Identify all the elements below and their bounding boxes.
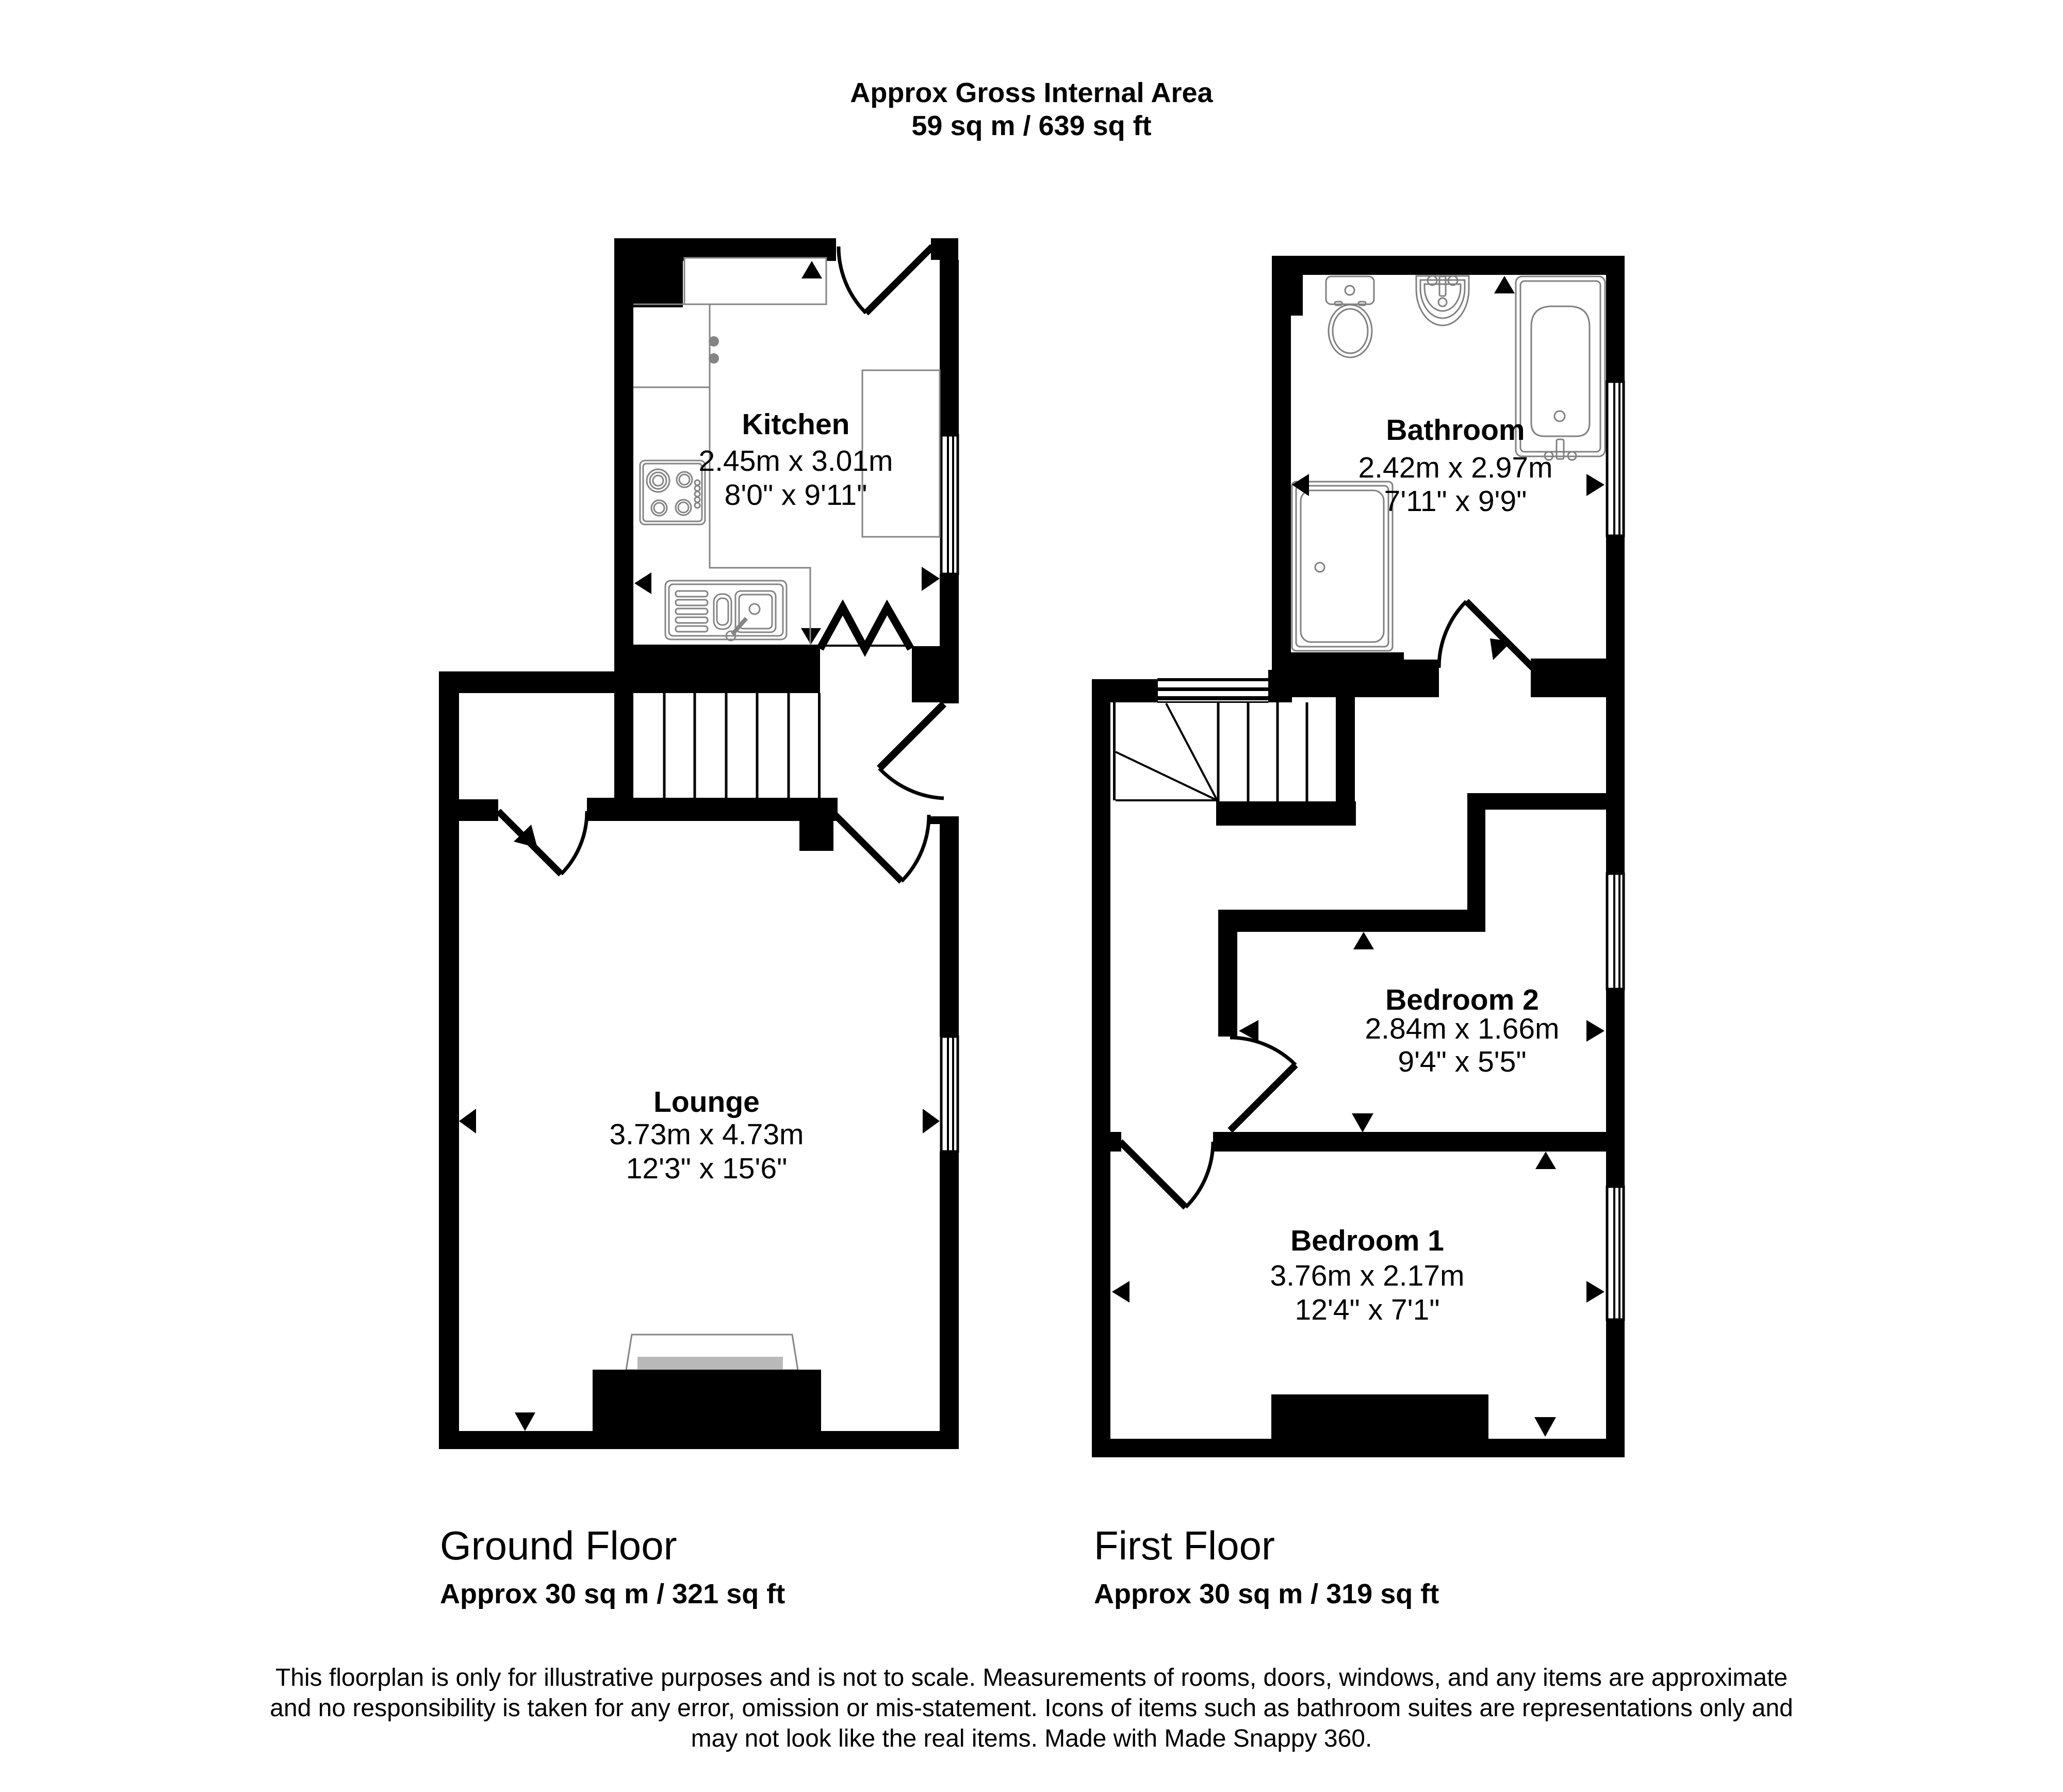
svg-text:and no responsibility is taken: and no responsibility is taken for any e… [270, 1695, 1793, 1722]
svg-text:3.76m x 2.17m: 3.76m x 2.17m [1270, 1259, 1464, 1292]
svg-text:12'3" x 15'6": 12'3" x 15'6" [626, 1152, 788, 1185]
svg-text:9'4" x 5'5": 9'4" x 5'5" [1398, 1045, 1526, 1078]
svg-text:2.84m x 1.66m: 2.84m x 1.66m [1365, 1012, 1559, 1045]
svg-text:Bedroom 2: Bedroom 2 [1385, 983, 1539, 1016]
svg-text:12'4" x 7'1": 12'4" x 7'1" [1295, 1293, 1440, 1326]
svg-text:2.42m x 2.97m: 2.42m x 2.97m [1358, 451, 1552, 484]
svg-text:8'0" x 9'11": 8'0" x 9'11" [725, 479, 867, 512]
svg-text:Approx 30 sq m / 321 sq ft: Approx 30 sq m / 321 sq ft [440, 1579, 785, 1609]
svg-text:3.73m x 4.73m: 3.73m x 4.73m [609, 1118, 804, 1151]
svg-text:Bedroom 1: Bedroom 1 [1290, 1224, 1444, 1257]
svg-text:Approx 30 sq m / 319 sq ft: Approx 30 sq m / 319 sq ft [1094, 1579, 1439, 1609]
svg-text:Lounge: Lounge [653, 1086, 760, 1119]
svg-text:2.45m x 3.01m: 2.45m x 3.01m [698, 445, 893, 478]
svg-text:59 sq m / 639 sq ft: 59 sq m / 639 sq ft [911, 110, 1151, 141]
svg-text:First Floor: First Floor [1094, 1523, 1275, 1568]
svg-text:7'11" x 9'9": 7'11" x 9'9" [1384, 485, 1527, 518]
svg-text:Bathroom: Bathroom [1386, 414, 1525, 447]
svg-text:Approx Gross Internal Area: Approx Gross Internal Area [850, 77, 1213, 108]
svg-text:Kitchen: Kitchen [742, 408, 849, 441]
svg-text:Ground Floor: Ground Floor [440, 1523, 677, 1568]
svg-text:This floorplan is only for ill: This floorplan is only for illustrative … [275, 1664, 1788, 1691]
svg-text:may not look like the real ite: may not look like the real items. Made w… [691, 1725, 1372, 1752]
